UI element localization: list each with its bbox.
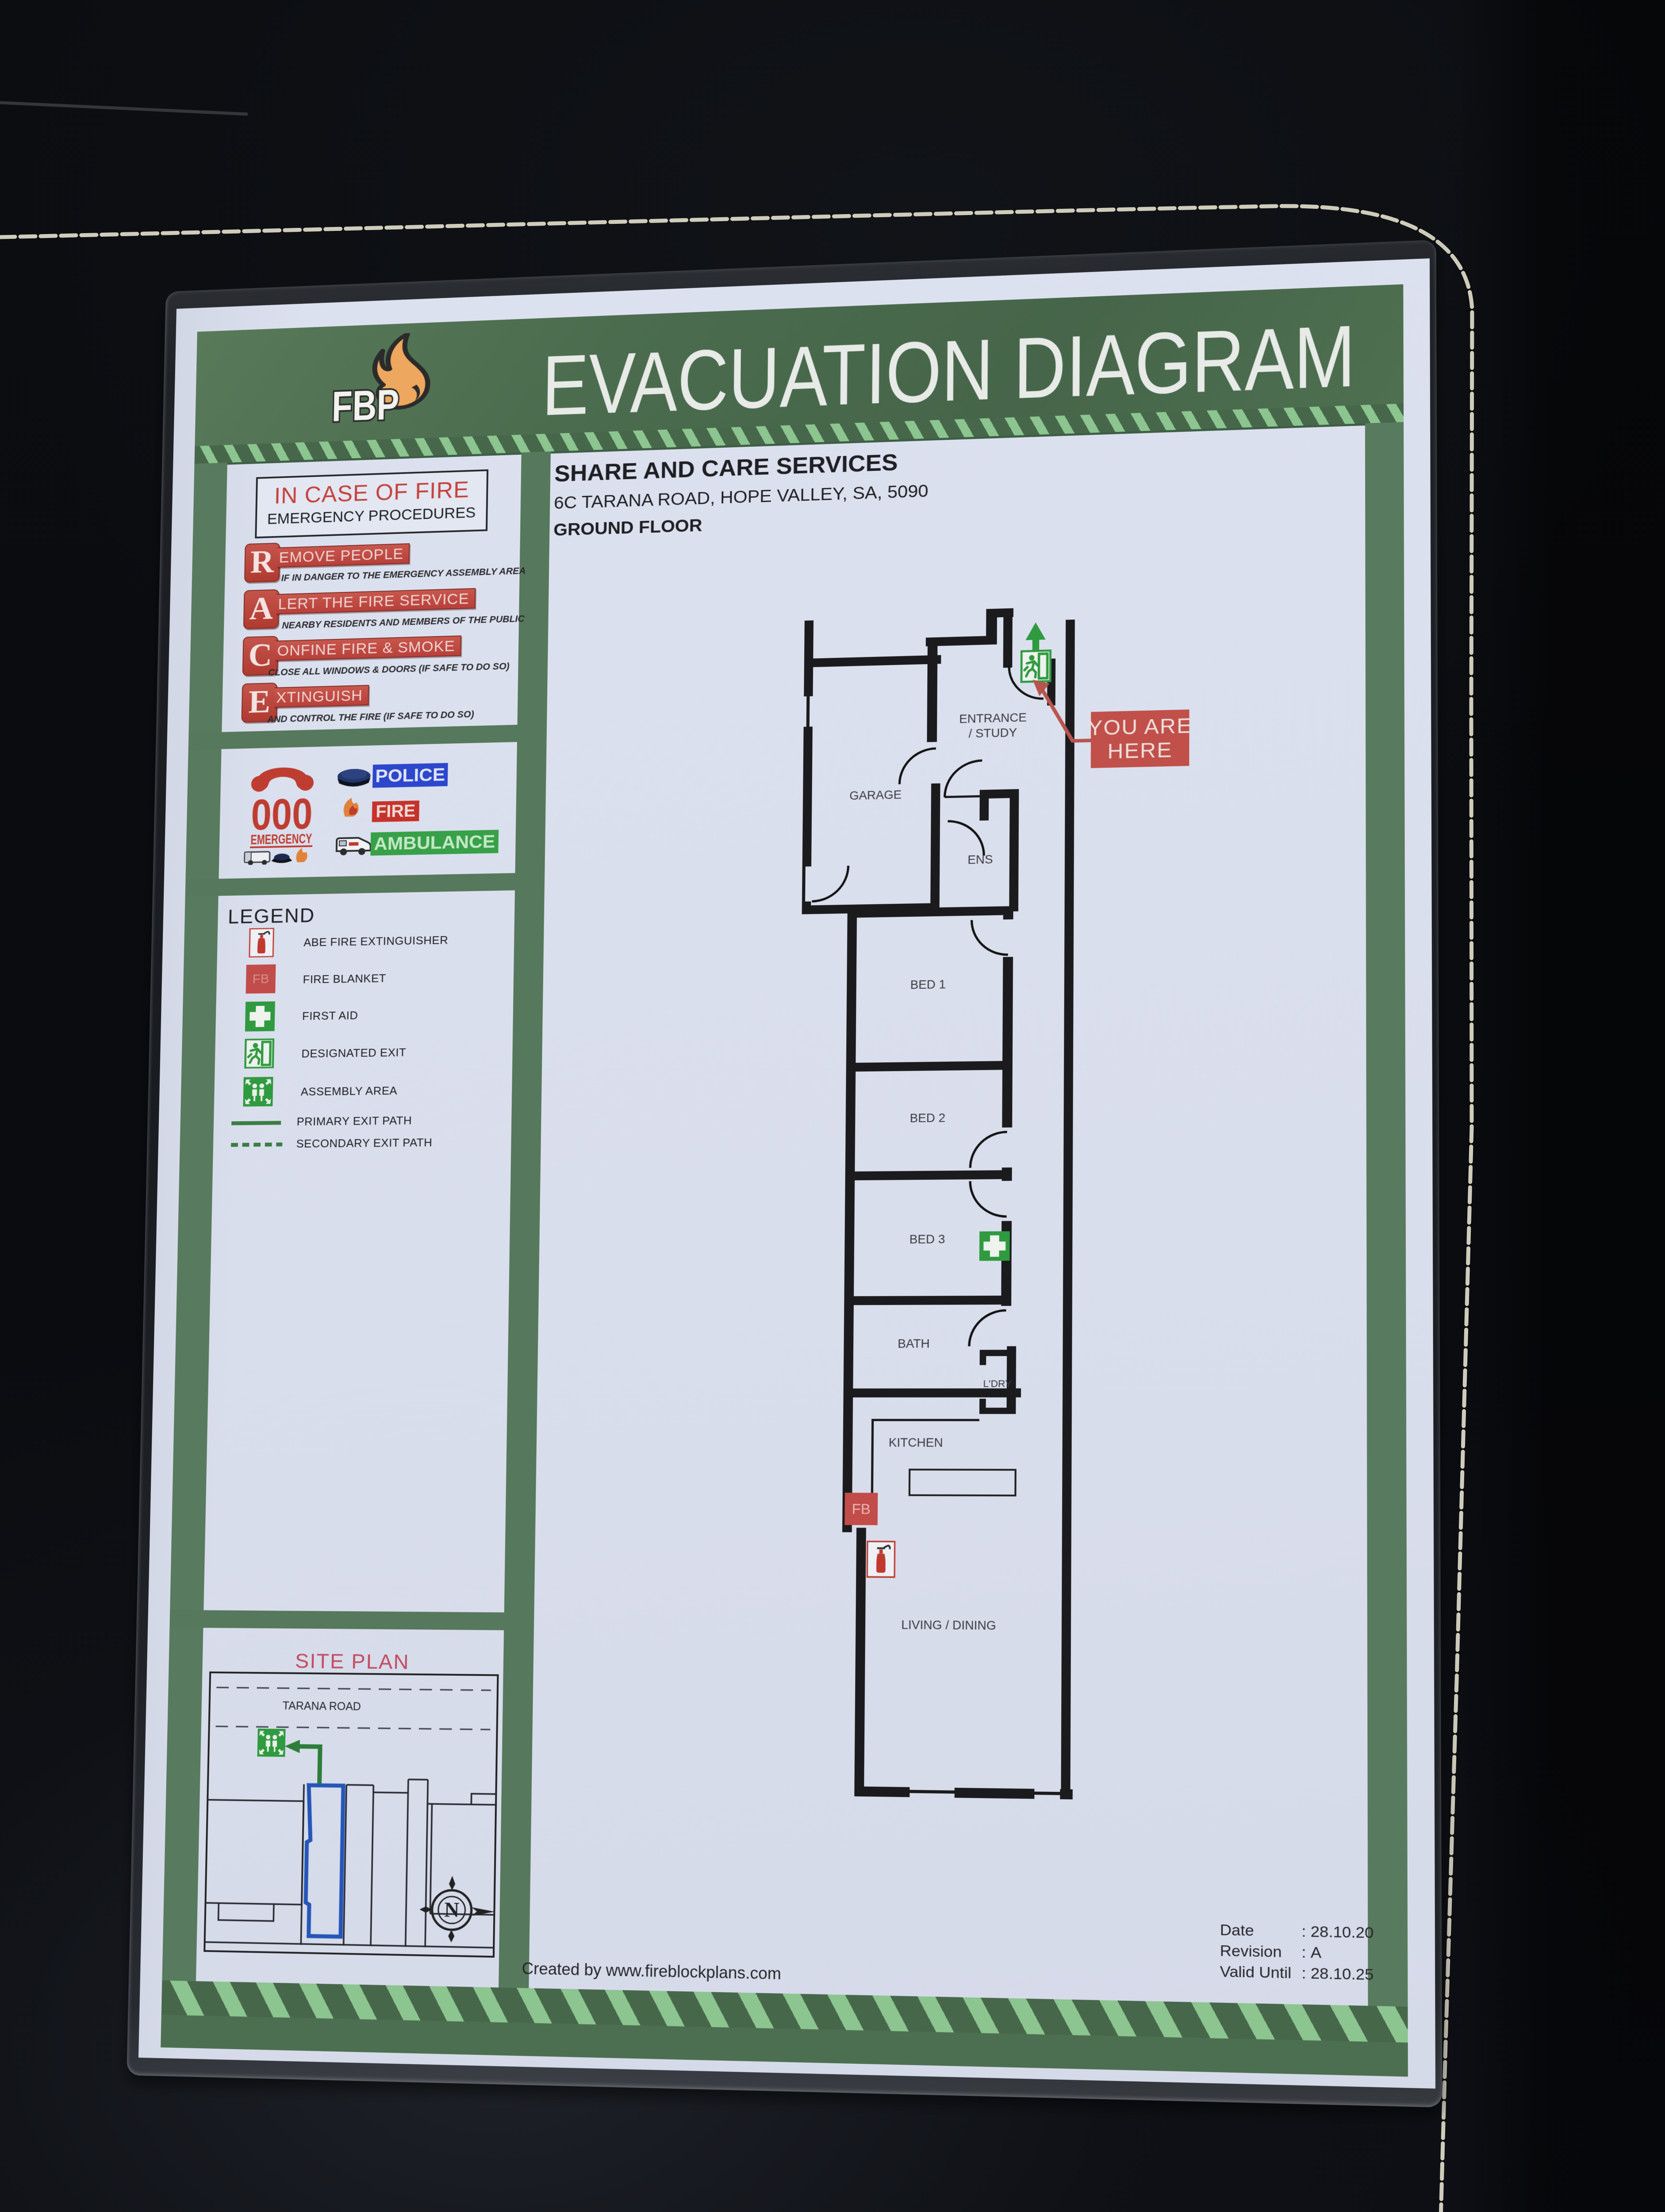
svg-text:LIVING / DINING: LIVING / DINING bbox=[901, 1618, 996, 1632]
svg-text:BATH: BATH bbox=[898, 1337, 930, 1351]
svg-text:HERE: HERE bbox=[1108, 738, 1173, 763]
svg-text:EMERGENCY: EMERGENCY bbox=[250, 831, 312, 848]
svg-text:TARANA ROAD: TARANA ROAD bbox=[283, 1700, 361, 1713]
svg-text:GARAGE: GARAGE bbox=[849, 788, 902, 803]
svg-text:/ STUDY: / STUDY bbox=[969, 726, 1017, 741]
svg-text:FB: FB bbox=[852, 1502, 871, 1517]
svg-text:L'DRY: L'DRY bbox=[983, 1379, 1012, 1390]
svg-text:YOU ARE: YOU ARE bbox=[1088, 714, 1189, 740]
svg-text:N: N bbox=[444, 1899, 459, 1922]
svg-text:BED 1: BED 1 bbox=[910, 978, 946, 992]
svg-text:FBP: FBP bbox=[331, 381, 399, 430]
svg-text:ENS: ENS bbox=[967, 853, 993, 866]
svg-text:ENTRANCE: ENTRANCE bbox=[959, 711, 1027, 726]
svg-text:BED 3: BED 3 bbox=[909, 1233, 945, 1246]
svg-text:KITCHEN: KITCHEN bbox=[889, 1436, 943, 1449]
svg-text:BED 2: BED 2 bbox=[910, 1112, 946, 1125]
